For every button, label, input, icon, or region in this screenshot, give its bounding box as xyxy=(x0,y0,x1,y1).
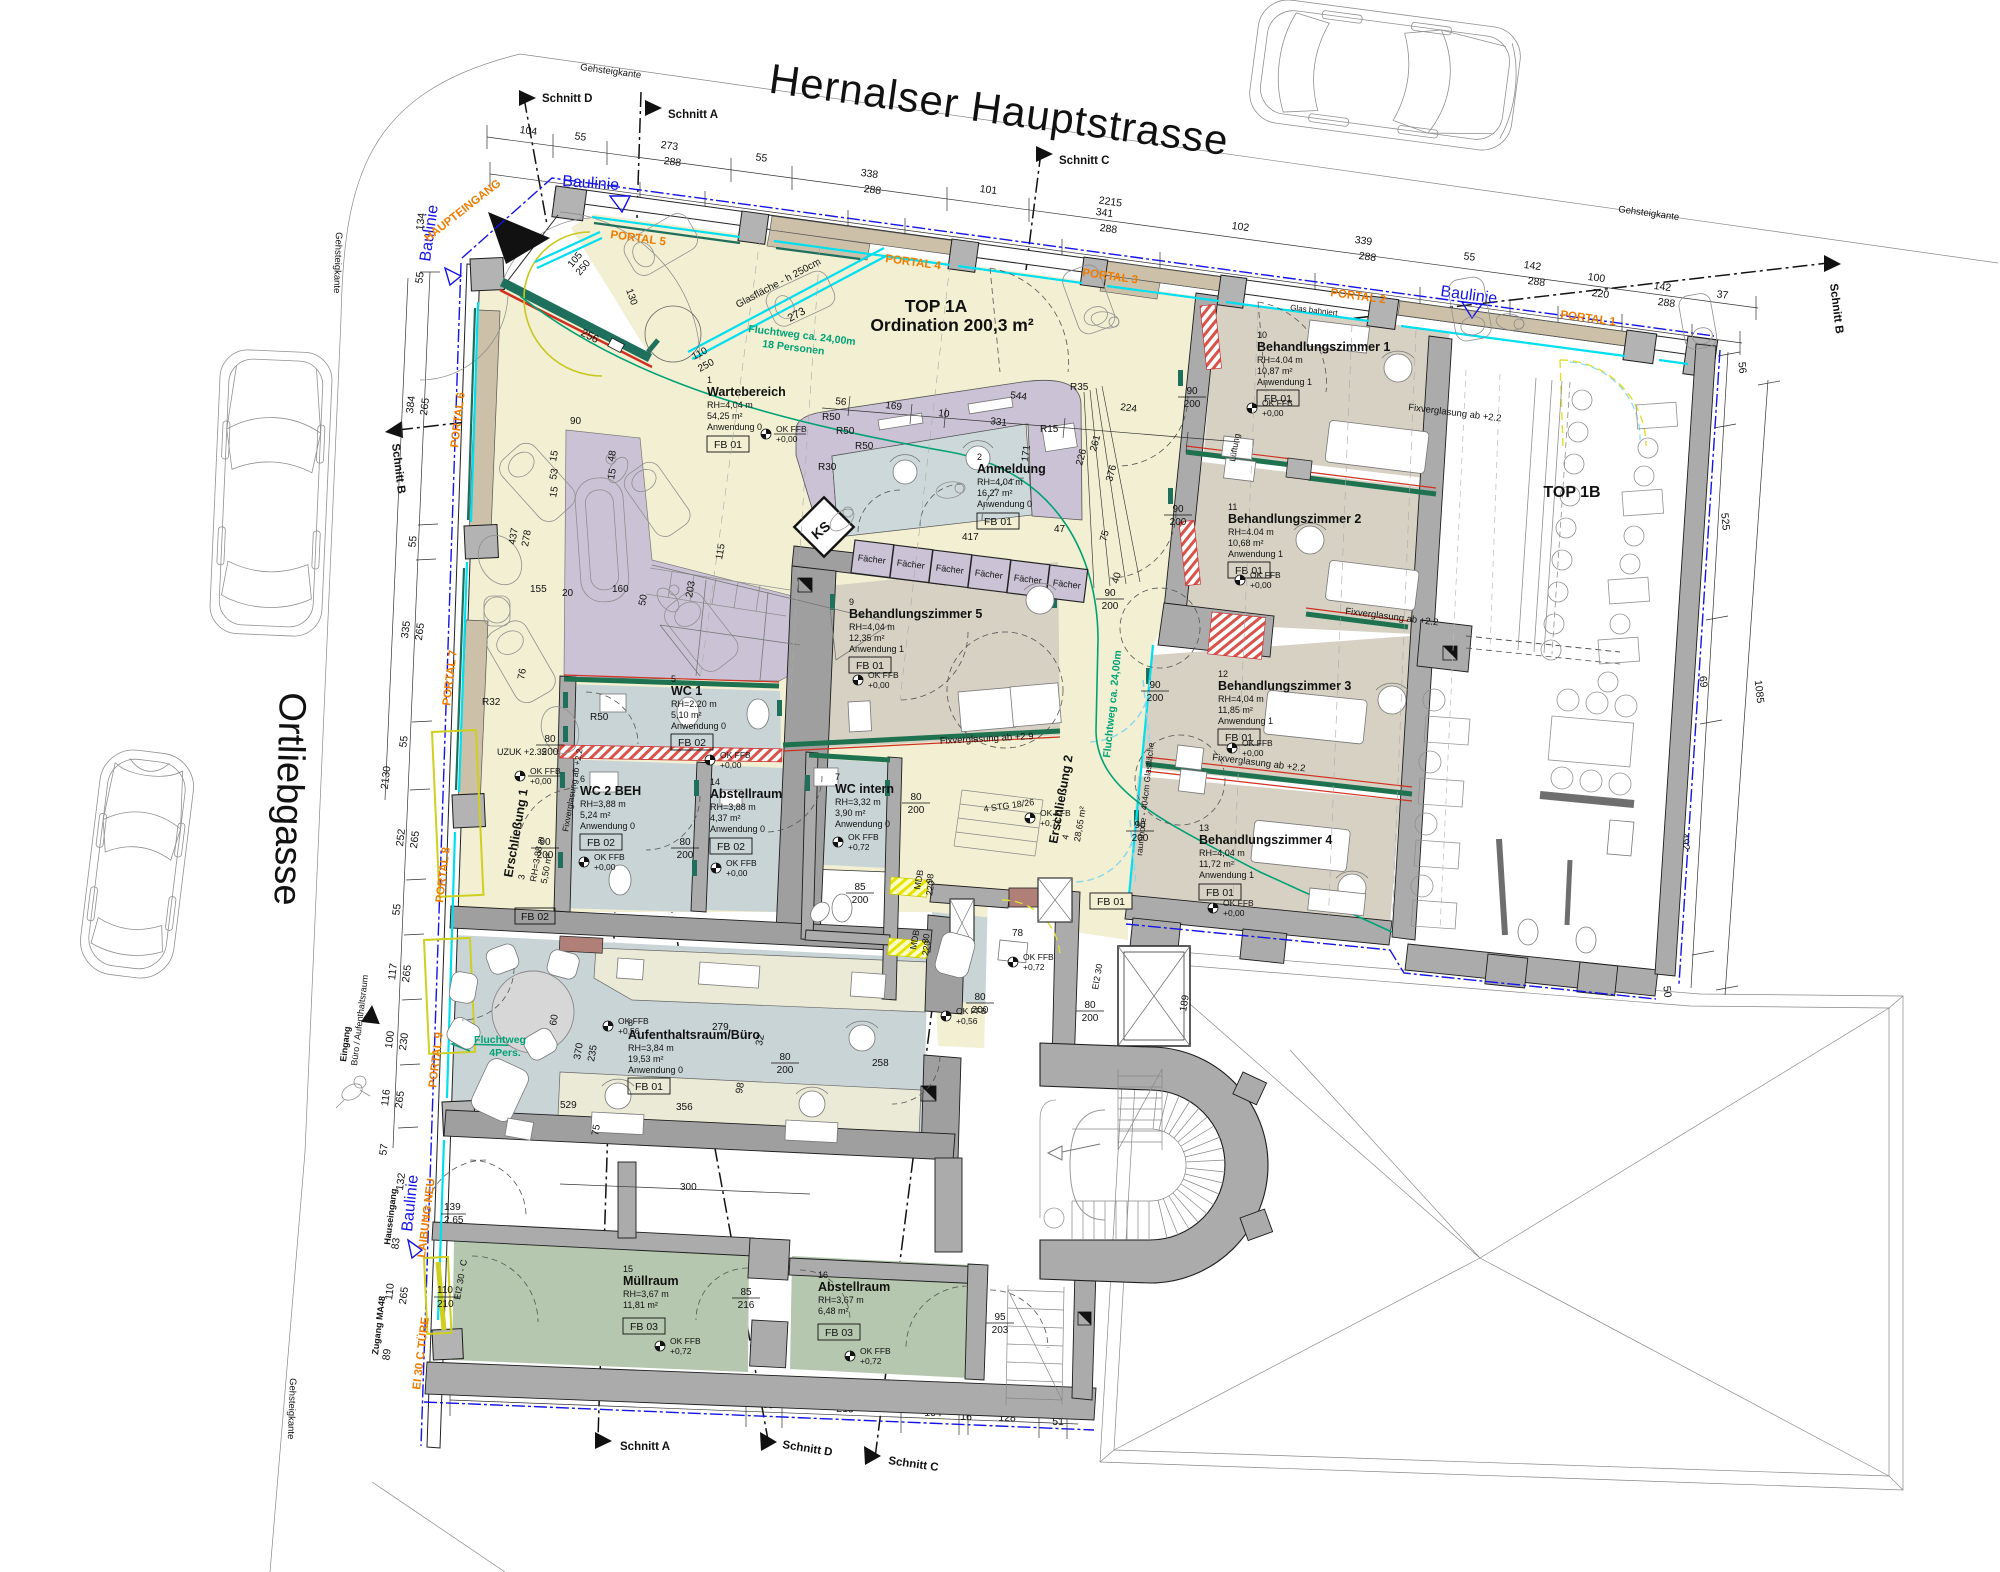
svg-text:80: 80 xyxy=(544,734,556,745)
svg-text:102: 102 xyxy=(1231,220,1250,234)
svg-text:171: 171 xyxy=(1020,444,1033,462)
svg-text:288: 288 xyxy=(1099,222,1118,236)
svg-text:+0,00: +0,00 xyxy=(776,434,798,444)
svg-text:252: 252 xyxy=(394,828,408,847)
svg-text:+0,00: +0,00 xyxy=(530,776,552,786)
svg-text:OK FFB: OK FFB xyxy=(1262,398,1293,408)
svg-text:10: 10 xyxy=(1257,330,1267,340)
svg-text:220: 220 xyxy=(1591,287,1610,301)
svg-text:R30: R30 xyxy=(818,462,837,473)
svg-text:200: 200 xyxy=(1170,517,1187,528)
svg-text:47: 47 xyxy=(1054,524,1066,535)
svg-text:Abstellraum: Abstellraum xyxy=(818,1280,890,1294)
svg-text:Anwendung 0: Anwendung 0 xyxy=(671,721,726,731)
svg-text:OK FFB: OK FFB xyxy=(594,852,625,862)
svg-text:RH=4.04 m: RH=4.04 m xyxy=(1228,527,1274,537)
svg-text:100: 100 xyxy=(1587,271,1606,285)
svg-text:142: 142 xyxy=(1653,280,1672,294)
svg-text:+0,72: +0,72 xyxy=(1023,962,1045,972)
svg-text:OK FFB: OK FFB xyxy=(1242,738,1273,748)
svg-text:288: 288 xyxy=(1657,296,1676,310)
svg-text:Anwendung 0: Anwendung 0 xyxy=(710,824,765,834)
svg-text:R32: R32 xyxy=(482,697,501,708)
svg-text:Behandlungszimmer 1: Behandlungszimmer 1 xyxy=(1257,340,1390,354)
svg-text:169: 169 xyxy=(885,400,903,413)
svg-text:+0,72: +0,72 xyxy=(670,1346,692,1356)
svg-text:Anwendung 0: Anwendung 0 xyxy=(977,499,1032,509)
svg-text:Gehsteigkante: Gehsteigkante xyxy=(331,232,344,294)
svg-text:55: 55 xyxy=(1463,250,1476,263)
svg-text:Fluchtweg: Fluchtweg xyxy=(474,1034,526,1046)
svg-text:RH=2.20 m: RH=2.20 m xyxy=(671,699,717,709)
svg-text:Schnitt A: Schnitt A xyxy=(668,109,718,121)
svg-text:+0,00: +0,00 xyxy=(1262,408,1284,418)
svg-text:80: 80 xyxy=(910,792,922,803)
svg-text:288: 288 xyxy=(863,183,882,197)
svg-text:55: 55 xyxy=(413,271,426,284)
svg-text:90: 90 xyxy=(570,416,582,427)
svg-text:2.65: 2.65 xyxy=(444,1215,464,1226)
svg-text:R50: R50 xyxy=(822,412,841,423)
svg-text:200: 200 xyxy=(1147,693,1164,704)
svg-text:RH=3,67 m: RH=3,67 m xyxy=(623,1289,669,1299)
svg-text:50: 50 xyxy=(1660,985,1673,998)
svg-text:37: 37 xyxy=(1716,288,1729,301)
svg-text:155: 155 xyxy=(530,584,547,595)
svg-text:Behandlungszimmer 2: Behandlungszimmer 2 xyxy=(1228,512,1361,526)
svg-text:300: 300 xyxy=(680,1182,697,1193)
svg-text:10: 10 xyxy=(938,408,951,420)
svg-text:RH=3,88 m: RH=3,88 m xyxy=(580,799,626,809)
svg-text:TOP 1A: TOP 1A xyxy=(905,296,968,316)
svg-text:55: 55 xyxy=(755,151,768,164)
svg-text:90: 90 xyxy=(1149,680,1161,691)
svg-text:Schnitt A: Schnitt A xyxy=(620,1441,670,1453)
svg-text:Behandlungszimmer 3: Behandlungszimmer 3 xyxy=(1218,679,1351,693)
svg-text:R15: R15 xyxy=(1040,424,1059,435)
svg-text:Behandlungszimmer 4: Behandlungszimmer 4 xyxy=(1199,833,1332,847)
svg-text:Anwendung 0: Anwendung 0 xyxy=(835,819,890,829)
svg-text:10,68 m²: 10,68 m² xyxy=(1228,538,1264,548)
svg-text:200: 200 xyxy=(537,850,554,861)
svg-text:265: 265 xyxy=(397,1286,411,1305)
svg-text:+0,56: +0,56 xyxy=(618,1026,640,1036)
svg-text:230: 230 xyxy=(397,1032,411,1051)
svg-text:338: 338 xyxy=(860,167,879,181)
svg-text:224: 224 xyxy=(1120,402,1138,415)
svg-text:FB 01: FB 01 xyxy=(635,1081,663,1093)
svg-text:Ortliebgasse: Ortliebgasse xyxy=(265,692,313,906)
svg-text:200: 200 xyxy=(908,805,925,816)
svg-text:90: 90 xyxy=(1172,504,1184,515)
svg-text:FB 03: FB 03 xyxy=(630,1321,658,1333)
svg-text:WC 1: WC 1 xyxy=(671,684,702,698)
svg-text:OK FFB: OK FFB xyxy=(618,1016,649,1026)
svg-text:R50: R50 xyxy=(836,426,855,437)
svg-text:200: 200 xyxy=(542,747,559,758)
svg-text:288: 288 xyxy=(1527,275,1546,289)
svg-text:WC 2 BEH: WC 2 BEH xyxy=(580,784,641,798)
svg-text:+0,00: +0,00 xyxy=(726,868,748,878)
svg-text:273: 273 xyxy=(660,139,679,153)
svg-text:R50: R50 xyxy=(855,441,874,452)
svg-text:142: 142 xyxy=(1523,259,1542,273)
svg-text:OK FFB: OK FFB xyxy=(860,1346,891,1356)
svg-text:54,25 m²: 54,25 m² xyxy=(707,411,743,421)
svg-text:56: 56 xyxy=(1735,361,1748,374)
svg-text:+0,72: +0,72 xyxy=(848,842,870,852)
svg-text:6: 6 xyxy=(580,774,585,784)
svg-text:TOP 1B: TOP 1B xyxy=(1543,484,1600,501)
svg-text:Anwendung 0: Anwendung 0 xyxy=(580,821,635,831)
svg-text:11,72 m²: 11,72 m² xyxy=(1199,859,1234,869)
svg-text:384: 384 xyxy=(404,395,418,414)
svg-text:335: 335 xyxy=(399,620,413,639)
svg-text:+0,00: +0,00 xyxy=(868,680,890,690)
svg-text:200: 200 xyxy=(852,895,869,906)
svg-text:FB 02: FB 02 xyxy=(587,837,615,849)
svg-text:Anmeldung: Anmeldung xyxy=(977,462,1046,476)
svg-text:Müllraum: Müllraum xyxy=(623,1274,679,1288)
svg-text:+0,00: +0,00 xyxy=(1250,580,1272,590)
svg-text:13: 13 xyxy=(1199,823,1209,833)
svg-text:11,81 m²: 11,81 m² xyxy=(623,1300,658,1310)
svg-text:104: 104 xyxy=(519,124,538,138)
svg-text:356: 356 xyxy=(676,1102,693,1113)
svg-text:265: 265 xyxy=(393,1090,407,1109)
svg-text:11: 11 xyxy=(1228,502,1237,512)
svg-text:216: 216 xyxy=(738,1300,755,1311)
svg-text:Schnitt C: Schnitt C xyxy=(1059,155,1109,167)
svg-text:FB 01: FB 01 xyxy=(984,516,1012,528)
svg-text:2: 2 xyxy=(977,452,982,462)
svg-text:5: 5 xyxy=(671,674,676,684)
svg-text:210: 210 xyxy=(437,1299,454,1310)
svg-text:1085: 1085 xyxy=(1752,679,1766,704)
svg-text:14: 14 xyxy=(710,777,720,787)
svg-text:Wartebereich: Wartebereich xyxy=(707,385,786,399)
svg-text:78: 78 xyxy=(1012,928,1024,939)
svg-text:265: 265 xyxy=(413,622,427,641)
svg-text:Anwendung 1: Anwendung 1 xyxy=(1257,377,1312,387)
svg-text:4,37 m²: 4,37 m² xyxy=(710,813,741,823)
svg-text:200: 200 xyxy=(1102,601,1119,612)
svg-text:57: 57 xyxy=(377,1143,390,1156)
svg-text:529: 529 xyxy=(560,1100,577,1111)
svg-text:Aufenthaltsraum/Büro: Aufenthaltsraum/Büro xyxy=(628,1028,760,1042)
svg-text:3,90 m²: 3,90 m² xyxy=(835,808,866,818)
svg-text:Anwendung 1: Anwendung 1 xyxy=(1218,716,1273,726)
svg-text:265: 265 xyxy=(418,397,432,416)
svg-text:+0,72: +0,72 xyxy=(860,1356,882,1366)
svg-text:Schnitt D: Schnitt D xyxy=(542,93,592,105)
svg-text:+0,72: +0,72 xyxy=(1040,818,1062,828)
svg-text:11,85 m²: 11,85 m² xyxy=(1218,705,1253,715)
svg-text:UZUK +2.35: UZUK +2.35 xyxy=(497,747,547,757)
svg-text:WC intern: WC intern xyxy=(835,782,894,796)
svg-text:RH=3,84 m: RH=3,84 m xyxy=(628,1043,674,1053)
svg-text:+0,00: +0,00 xyxy=(594,862,616,872)
svg-text:101: 101 xyxy=(979,183,998,197)
svg-text:OK FFB: OK FFB xyxy=(868,670,899,680)
svg-text:OK FFB: OK FFB xyxy=(1023,952,1054,962)
svg-text:10,87 m²: 10,87 m² xyxy=(1257,366,1293,376)
svg-text:85: 85 xyxy=(854,882,866,893)
svg-text:Gehsteigkante: Gehsteigkante xyxy=(285,1378,298,1440)
svg-text:55: 55 xyxy=(397,735,410,748)
svg-text:12: 12 xyxy=(1218,669,1228,679)
svg-text:9: 9 xyxy=(849,597,854,607)
svg-text:R50: R50 xyxy=(590,712,609,723)
svg-text:RH=4,04 m: RH=4,04 m xyxy=(977,477,1023,487)
svg-text:RH=3,32 m: RH=3,32 m xyxy=(835,797,881,807)
svg-text:20: 20 xyxy=(562,588,574,599)
svg-text:417: 417 xyxy=(962,532,979,543)
svg-text:OK FFB: OK FFB xyxy=(530,766,561,776)
svg-text:Abstellraum: Abstellraum xyxy=(710,787,782,801)
svg-text:OK FFB: OK FFB xyxy=(1223,898,1254,908)
svg-text:200: 200 xyxy=(677,850,694,861)
svg-text:12,35 m²: 12,35 m² xyxy=(849,633,885,643)
svg-text:RH=3,88 m: RH=3,88 m xyxy=(710,802,756,812)
svg-text:+0,00: +0,00 xyxy=(1223,908,1245,918)
svg-text:+0,00: +0,00 xyxy=(720,760,742,770)
svg-text:89: 89 xyxy=(380,1348,393,1361)
svg-text:15: 15 xyxy=(623,1264,633,1274)
svg-text:6,48 m²: 6,48 m² xyxy=(818,1306,849,1316)
svg-text:RH=3,67 m: RH=3,67 m xyxy=(818,1295,864,1305)
svg-text:55: 55 xyxy=(574,130,587,143)
svg-text:FB 01: FB 01 xyxy=(714,439,742,451)
svg-text:Ordination 200,3 m²: Ordination 200,3 m² xyxy=(870,315,1034,335)
svg-text:FB 02: FB 02 xyxy=(521,911,549,923)
svg-text:OK FFB: OK FFB xyxy=(848,832,879,842)
svg-text:55: 55 xyxy=(390,903,403,916)
svg-text:FB 02: FB 02 xyxy=(678,737,706,749)
svg-text:RH=4.04 m: RH=4.04 m xyxy=(1257,355,1303,365)
svg-text:Anwendung 1: Anwendung 1 xyxy=(1199,870,1254,880)
svg-text:Anwendung 0: Anwendung 0 xyxy=(628,1065,683,1075)
svg-text:200: 200 xyxy=(1132,833,1149,844)
svg-text:331: 331 xyxy=(990,416,1008,429)
svg-text:FB 01: FB 01 xyxy=(1097,896,1125,908)
svg-text:341: 341 xyxy=(1095,206,1114,220)
svg-text:100: 100 xyxy=(383,1030,397,1049)
svg-text:4Pers.: 4Pers. xyxy=(489,1047,521,1059)
svg-text:OK FFB: OK FFB xyxy=(726,858,757,868)
svg-text:258: 258 xyxy=(872,1058,889,1069)
svg-text:90: 90 xyxy=(539,837,551,848)
svg-text:19,53 m²: 19,53 m² xyxy=(628,1054,664,1064)
svg-text:525: 525 xyxy=(1718,512,1732,531)
svg-text:RH=4,04 m: RH=4,04 m xyxy=(1218,694,1264,704)
svg-text:+0,56: +0,56 xyxy=(956,1016,978,1026)
svg-text:110: 110 xyxy=(437,1285,453,1296)
svg-text:16: 16 xyxy=(818,1270,828,1280)
svg-text:RH=4,04 m: RH=4,04 m xyxy=(849,622,895,632)
svg-text:5,24 m²: 5,24 m² xyxy=(580,810,611,820)
svg-text:200: 200 xyxy=(777,1065,794,1076)
svg-text:Behandlungszimmer 5: Behandlungszimmer 5 xyxy=(849,607,982,621)
svg-text:OK FFB: OK FFB xyxy=(1250,570,1281,580)
svg-text:R35: R35 xyxy=(1070,382,1089,393)
svg-text:139: 139 xyxy=(444,1202,461,1213)
svg-text:200: 200 xyxy=(1082,1013,1099,1024)
svg-text:279: 279 xyxy=(712,1022,729,1033)
svg-text:544: 544 xyxy=(1010,390,1028,403)
svg-text:5,10 m²: 5,10 m² xyxy=(671,710,702,720)
svg-text:90: 90 xyxy=(1104,588,1116,599)
svg-text:200: 200 xyxy=(972,1005,989,1016)
svg-text:RH=4,04 m: RH=4,04 m xyxy=(1199,848,1245,858)
svg-text:288: 288 xyxy=(1358,250,1377,264)
svg-text:7: 7 xyxy=(835,772,840,782)
svg-text:FB 03: FB 03 xyxy=(825,1327,853,1339)
svg-text:80: 80 xyxy=(679,837,691,848)
svg-text:200: 200 xyxy=(1184,399,1201,410)
svg-text:56: 56 xyxy=(835,396,848,408)
svg-text:160: 160 xyxy=(612,584,629,595)
svg-text:116: 116 xyxy=(379,1088,393,1106)
svg-text:265: 265 xyxy=(400,964,414,983)
svg-text:90: 90 xyxy=(1134,820,1146,831)
svg-text:80: 80 xyxy=(1084,1000,1096,1011)
svg-text:90: 90 xyxy=(1186,386,1198,397)
svg-text:Anwendung 1: Anwendung 1 xyxy=(1228,549,1283,559)
svg-text:203: 203 xyxy=(992,1325,1009,1336)
svg-text:16,27 m²: 16,27 m² xyxy=(977,488,1013,498)
svg-text:85: 85 xyxy=(740,1287,752,1298)
svg-text:OK FFB: OK FFB xyxy=(670,1336,701,1346)
svg-text:Anwendung 1: Anwendung 1 xyxy=(849,644,904,654)
svg-text:55: 55 xyxy=(406,535,419,548)
svg-text:FB 02: FB 02 xyxy=(717,841,745,853)
svg-text:339: 339 xyxy=(1354,234,1373,248)
svg-text:OK FFB: OK FFB xyxy=(776,424,807,434)
svg-text:265: 265 xyxy=(408,830,422,849)
svg-text:OK FFB: OK FFB xyxy=(1040,808,1071,818)
svg-text:RH=4,04 m: RH=4,04 m xyxy=(707,400,753,410)
svg-text:288: 288 xyxy=(663,155,682,169)
svg-text:1: 1 xyxy=(707,375,712,385)
svg-text:80: 80 xyxy=(779,1052,791,1063)
svg-text:OK FFB: OK FFB xyxy=(720,750,751,760)
svg-text:117: 117 xyxy=(386,962,400,980)
svg-text:95: 95 xyxy=(994,1312,1006,1323)
svg-text:80: 80 xyxy=(974,992,986,1003)
